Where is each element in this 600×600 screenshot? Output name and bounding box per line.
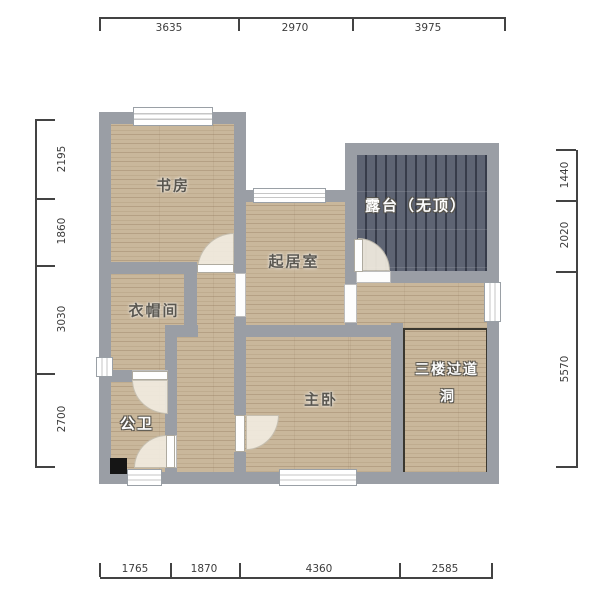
dimension-value: 2020	[559, 222, 571, 249]
dimension-tick	[35, 119, 55, 121]
dimension-value: 2195	[56, 146, 68, 173]
dimension-tick	[35, 466, 55, 468]
dimension-tick	[556, 200, 576, 202]
room-label-master: 主卧	[304, 389, 338, 410]
door-threshold	[356, 271, 391, 283]
wall	[234, 202, 246, 273]
wall	[165, 468, 177, 484]
dimension-value: 4360	[306, 563, 333, 575]
dimension-tick	[99, 17, 101, 31]
dimension-tick	[556, 149, 576, 151]
wall-opening	[235, 273, 246, 317]
dimension-value: 2585	[432, 563, 459, 575]
window	[133, 107, 213, 126]
wall	[234, 337, 246, 415]
dimension-value: 2700	[56, 406, 68, 433]
dimension-value: 1860	[56, 218, 68, 245]
door-leaf	[235, 415, 245, 452]
dimension-line	[100, 17, 505, 19]
duct-shaft	[110, 458, 127, 474]
dimension-value: 1440	[559, 162, 571, 189]
room-label-cloakroom: 衣帽间	[128, 300, 179, 321]
wall	[234, 325, 403, 337]
door-leaf	[197, 264, 234, 273]
door-leaf	[166, 435, 175, 468]
dimension-tick	[491, 563, 493, 577]
wall	[234, 112, 246, 202]
wall	[345, 143, 499, 155]
dimension-line	[35, 120, 37, 467]
wall	[391, 323, 403, 484]
room-label-bathroom: 公卫	[120, 413, 154, 434]
window	[484, 282, 501, 322]
dimension-tick	[170, 563, 172, 577]
dimension-tick	[556, 271, 576, 273]
dimension-value: 1870	[191, 563, 218, 575]
dimension-value: 5570	[559, 356, 571, 383]
dimension-tick	[504, 17, 506, 31]
dimension-line	[100, 577, 493, 579]
room-label-living: 起居室	[268, 251, 319, 272]
dimension-value: 3635	[156, 22, 183, 34]
wall	[99, 262, 197, 274]
dimension-tick	[556, 466, 576, 468]
dimension-line	[576, 150, 578, 468]
door-leaf	[132, 371, 168, 380]
dimension-tick	[352, 17, 354, 31]
floor-plan-canvas: 书房 起居室 露台（无顶） 衣帽间 公卫 主卧 三楼过道 洞 3635 2970…	[0, 0, 600, 600]
dimension-tick	[99, 563, 101, 577]
room-label-corridor-void-2: 洞	[440, 386, 456, 406]
door-leaf	[354, 239, 363, 272]
window	[279, 469, 357, 486]
wall	[390, 271, 499, 283]
window	[96, 357, 113, 377]
window	[127, 469, 162, 486]
dimension-value: 3030	[56, 306, 68, 333]
dimension-value: 3975	[415, 22, 442, 34]
wall-opening	[344, 284, 357, 323]
dimension-tick	[35, 373, 55, 375]
room-label-terrace: 露台（无顶）	[365, 195, 467, 216]
dimension-value: 1765	[122, 563, 149, 575]
room-label-corridor-void: 三楼过道	[415, 359, 479, 379]
dimension-tick	[35, 198, 55, 200]
room-label-study: 书房	[156, 175, 190, 196]
wall	[234, 452, 246, 484]
dimension-tick	[35, 265, 55, 267]
wall	[165, 325, 198, 337]
window	[253, 188, 326, 203]
dimension-value: 2970	[282, 22, 309, 34]
wall	[99, 112, 111, 484]
dimension-tick	[239, 563, 241, 577]
dimension-tick	[399, 563, 401, 577]
dimension-tick	[238, 17, 240, 31]
